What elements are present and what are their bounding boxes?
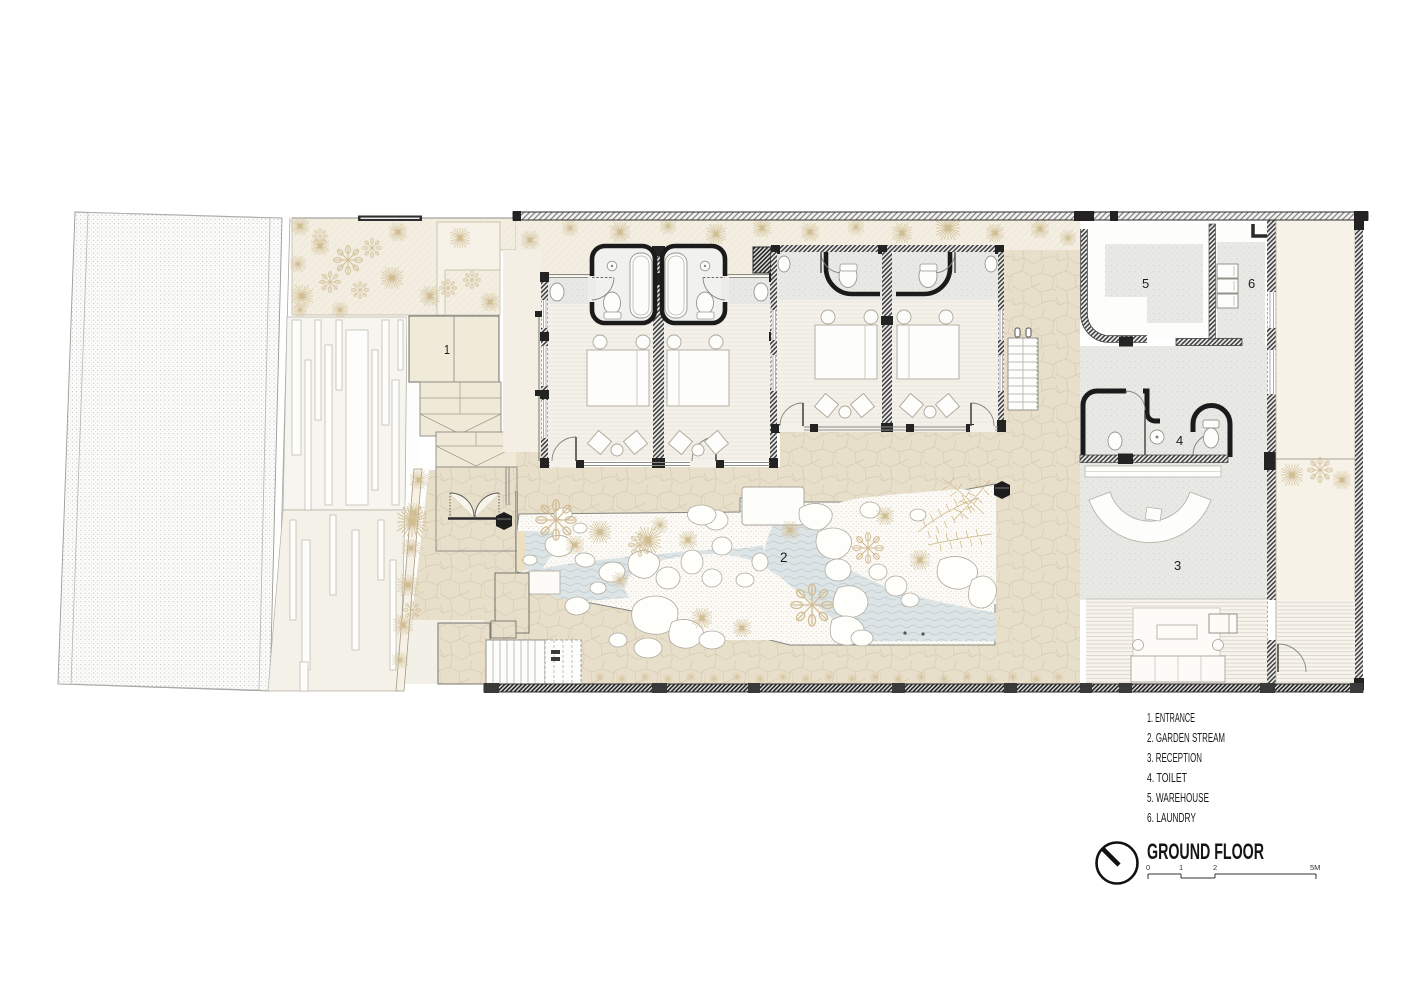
svg-text:6: 6 (1248, 276, 1255, 291)
svg-text:GROUND FLOOR: GROUND FLOOR (1147, 839, 1264, 864)
svg-text:1: 1 (1179, 863, 1183, 872)
svg-text:0: 0 (1146, 863, 1150, 872)
svg-text:3: 3 (1174, 558, 1181, 573)
svg-text:5: 5 (1142, 276, 1149, 291)
svg-text:5. WAREHOUSE: 5. WAREHOUSE (1147, 791, 1209, 805)
svg-text:4: 4 (1176, 433, 1183, 448)
svg-text:2. GARDEN STREAM: 2. GARDEN STREAM (1147, 731, 1225, 745)
svg-text:5M: 5M (1310, 863, 1320, 872)
svg-text:1. ENTRANCE: 1. ENTRANCE (1147, 711, 1195, 725)
svg-text:1: 1 (444, 342, 450, 357)
svg-text:4. TOILET: 4. TOILET (1147, 771, 1187, 785)
svg-text:6. LAUNDRY: 6. LAUNDRY (1147, 811, 1196, 825)
svg-text:3. RECEPTION: 3. RECEPTION (1147, 751, 1202, 765)
svg-text:2: 2 (780, 550, 788, 565)
svg-text:2: 2 (1213, 863, 1217, 872)
